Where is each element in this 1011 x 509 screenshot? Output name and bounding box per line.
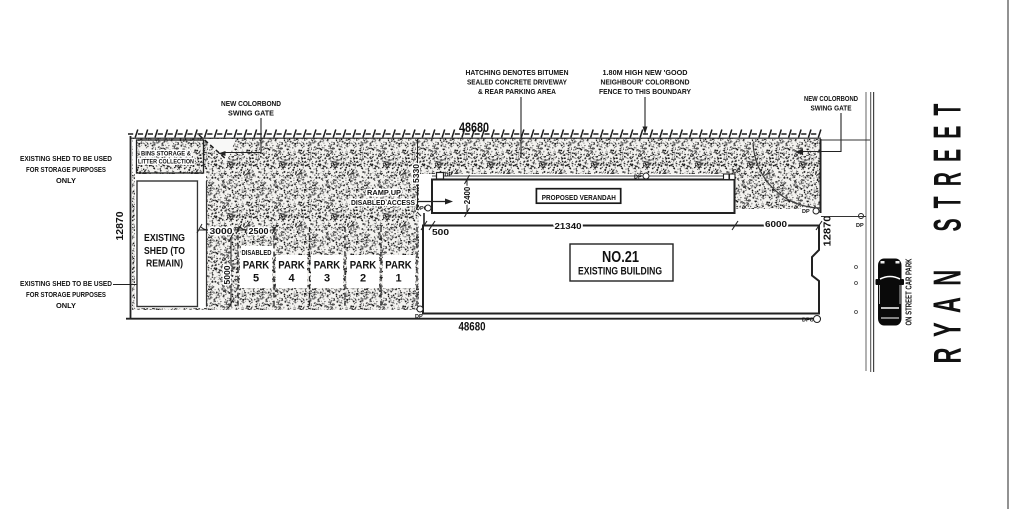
svg-text:DISABLED: DISABLED — [242, 248, 273, 257]
svg-text:6000: 6000 — [765, 219, 787, 229]
svg-text:NO.21: NO.21 — [602, 249, 639, 266]
svg-text:5330: 5330 — [411, 164, 421, 183]
svg-text:12870: 12870 — [114, 211, 126, 240]
svg-text:2400: 2400 — [462, 187, 472, 205]
svg-text:DP: DP — [802, 209, 810, 215]
svg-text:SWING GATE: SWING GATE — [228, 109, 274, 118]
svg-text:DP: DP — [415, 314, 423, 320]
svg-text:NEIGHBOUR' COLORBOND: NEIGHBOUR' COLORBOND — [601, 78, 690, 87]
svg-text:1.80M HIGH NEW 'GOOD: 1.80M HIGH NEW 'GOOD — [603, 68, 688, 77]
svg-text:5000: 5000 — [222, 265, 232, 284]
svg-text:DPC: DPC — [802, 318, 814, 324]
svg-text:DISABLED ACCESS: DISABLED ACCESS — [351, 198, 415, 207]
svg-text:FOR STORAGE PURPOSES: FOR STORAGE PURPOSES — [26, 165, 106, 174]
svg-text:STREET: STREET — [927, 94, 970, 232]
svg-text:PARK: PARK — [278, 260, 305, 272]
svg-text:PARK: PARK — [385, 260, 412, 272]
svg-text:DP: DP — [856, 223, 864, 229]
svg-text:2500: 2500 — [249, 226, 269, 236]
svg-text:21340: 21340 — [555, 221, 582, 231]
svg-text:48680: 48680 — [459, 322, 486, 334]
svg-text:ON STREET CAR PARK: ON STREET CAR PARK — [905, 258, 914, 325]
svg-text:PROPOSED VERANDAH: PROPOSED VERANDAH — [542, 193, 616, 202]
svg-text:500: 500 — [432, 227, 449, 237]
svg-text:EXISTING SHED TO BE USED: EXISTING SHED TO BE USED — [20, 279, 112, 288]
svg-text:NEW COLORBOND: NEW COLORBOND — [804, 94, 858, 103]
svg-text:REMAIN): REMAIN) — [146, 259, 183, 270]
svg-text:HATCHING DENOTES BITUMEN: HATCHING DENOTES BITUMEN — [466, 68, 569, 77]
svg-text:NEW COLORBOND: NEW COLORBOND — [221, 99, 281, 108]
svg-text:ONLY: ONLY — [56, 176, 76, 185]
svg-text:EXISTING BUILDING: EXISTING BUILDING — [578, 266, 662, 278]
svg-text:48680: 48680 — [459, 119, 489, 135]
svg-text:1: 1 — [395, 273, 401, 285]
svg-text:3: 3 — [324, 273, 330, 285]
svg-text:FOR STORAGE PURPOSES: FOR STORAGE PURPOSES — [26, 290, 106, 299]
svg-text:EXISTING SHED TO BE USED: EXISTING SHED TO BE USED — [20, 154, 112, 163]
svg-text:4: 4 — [288, 273, 295, 285]
svg-text:RAMP UP: RAMP UP — [367, 188, 401, 197]
svg-text:SHED (TO: SHED (TO — [144, 246, 185, 257]
svg-text:SEALED CONCRETE DRIVEWAY: SEALED CONCRETE DRIVEWAY — [467, 78, 567, 87]
svg-text:5: 5 — [253, 273, 259, 285]
svg-text:BINS STORAGE &: BINS STORAGE & — [141, 151, 191, 158]
svg-text:PARK: PARK — [243, 260, 270, 272]
svg-text:RYAN: RYAN — [927, 259, 970, 364]
svg-text:LITTER COLLECTION: LITTER COLLECTION — [138, 159, 194, 166]
svg-text:DP: DP — [445, 173, 453, 179]
svg-text:& REAR PARKING AREA: & REAR PARKING AREA — [478, 87, 556, 96]
svg-text:PARK: PARK — [350, 260, 377, 272]
svg-text:DP: DP — [733, 169, 741, 175]
svg-text:SWING GATE: SWING GATE — [811, 104, 852, 113]
svg-text:DP: DP — [634, 175, 642, 181]
svg-text:3000: 3000 — [210, 226, 233, 236]
svg-text:ONLY: ONLY — [56, 301, 76, 310]
svg-text:12870: 12870 — [822, 215, 834, 246]
svg-text:FENCE TO THIS BOUNDARY: FENCE TO THIS BOUNDARY — [599, 87, 691, 96]
svg-text:2: 2 — [360, 273, 366, 285]
svg-text:PARK: PARK — [314, 260, 341, 272]
svg-text:EXISTING: EXISTING — [144, 233, 185, 244]
